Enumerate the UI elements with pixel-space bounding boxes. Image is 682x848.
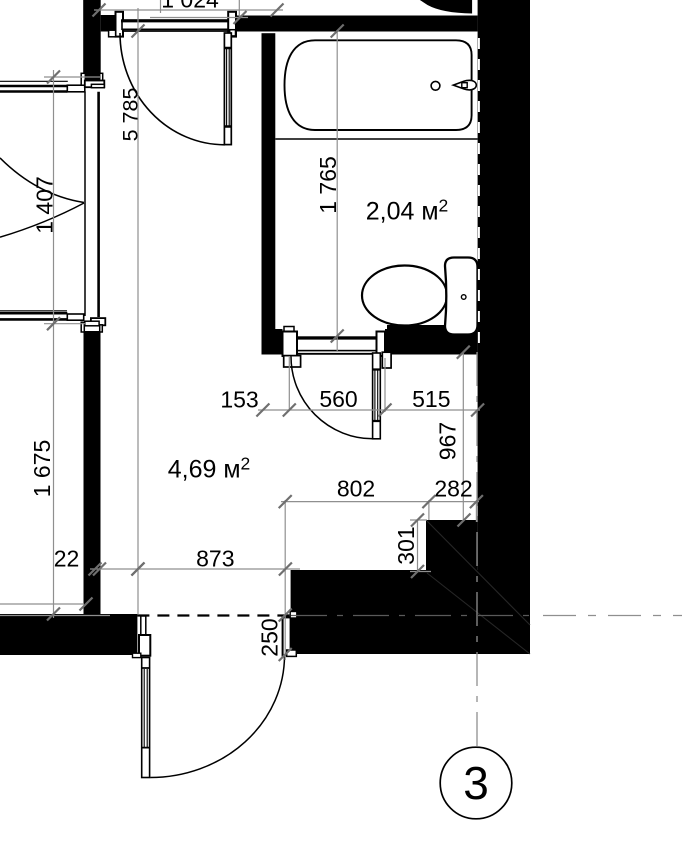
svg-text:4,69 м2: 4,69 м2 (168, 454, 251, 484)
svg-text:153: 153 (220, 387, 258, 413)
svg-text:1 765: 1 765 (315, 156, 341, 214)
svg-text:1 024: 1 024 (161, 0, 219, 13)
svg-text:802: 802 (337, 476, 375, 502)
svg-text:2,04 м2: 2,04 м2 (366, 196, 449, 226)
svg-text:873: 873 (196, 546, 234, 572)
svg-text:282: 282 (434, 476, 472, 502)
svg-text:5 785: 5 785 (119, 88, 143, 142)
svg-text:967: 967 (435, 422, 461, 460)
svg-text:3: 3 (463, 757, 489, 809)
svg-text:301: 301 (393, 526, 419, 564)
svg-text:250: 250 (257, 618, 283, 656)
svg-text:22: 22 (54, 546, 80, 572)
svg-text:515: 515 (412, 386, 450, 412)
svg-text:1 675: 1 675 (29, 440, 55, 498)
svg-text:560: 560 (319, 386, 357, 412)
svg-text:1 407: 1 407 (32, 176, 58, 234)
